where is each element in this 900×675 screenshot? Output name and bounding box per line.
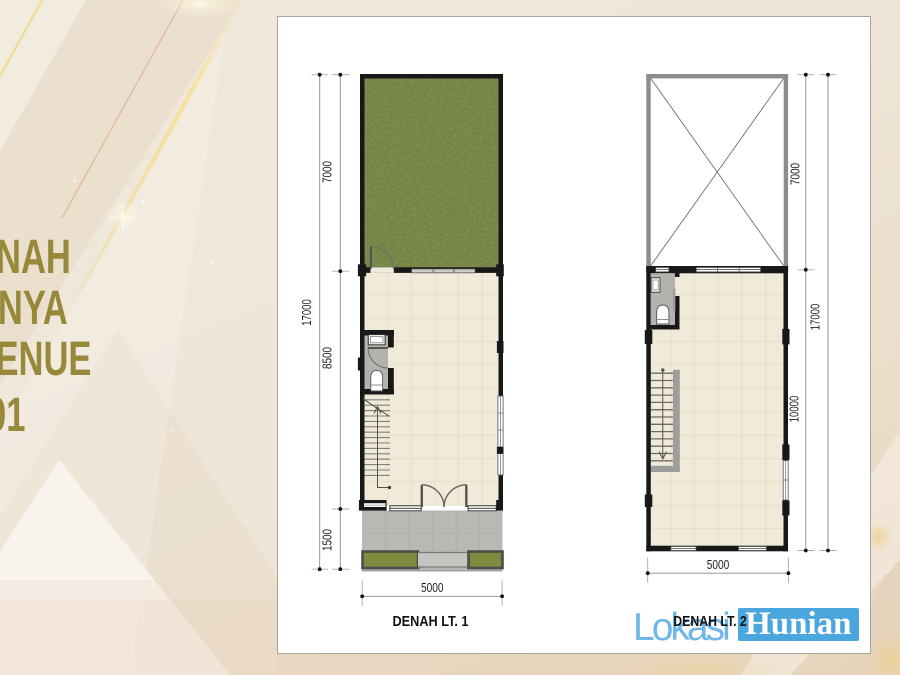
svg-text:DENAH LT. 1: DENAH LT. 1 xyxy=(393,613,469,630)
svg-text:17000: 17000 xyxy=(300,299,314,326)
svg-text:5000: 5000 xyxy=(421,580,444,595)
svg-text:17000: 17000 xyxy=(809,304,823,331)
svg-text:5000: 5000 xyxy=(707,557,730,572)
svg-text:7000: 7000 xyxy=(789,163,803,185)
svg-text:DENAH LT. 2: DENAH LT. 2 xyxy=(673,613,747,630)
svg-text:1500: 1500 xyxy=(321,529,335,551)
svg-text:10000: 10000 xyxy=(788,396,802,423)
svg-text:8500: 8500 xyxy=(321,347,335,369)
svg-text:7000: 7000 xyxy=(321,161,335,183)
